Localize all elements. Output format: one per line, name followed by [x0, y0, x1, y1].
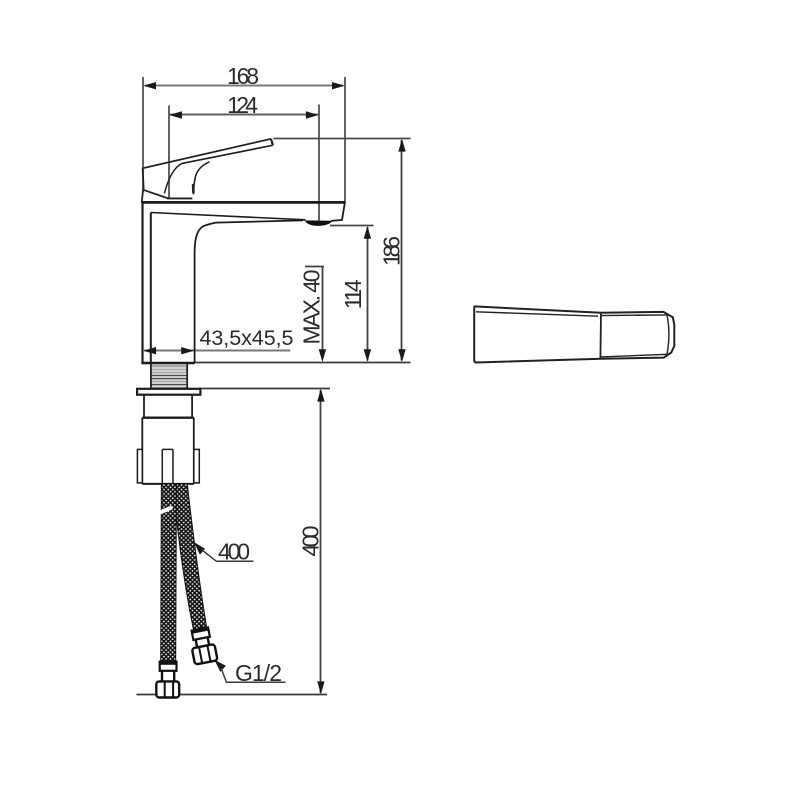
svg-text:43,5x45,5: 43,5x45,5	[200, 326, 294, 350]
svg-text:400: 400	[218, 539, 250, 565]
svg-text:MAX. 40: MAX. 40	[299, 270, 325, 345]
svg-text:G1/2: G1/2	[235, 660, 282, 686]
svg-text:186: 186	[379, 236, 405, 266]
svg-text:124: 124	[227, 92, 258, 118]
svg-text:114: 114	[340, 279, 366, 309]
svg-text:400: 400	[298, 526, 324, 557]
svg-text:168: 168	[227, 63, 259, 89]
